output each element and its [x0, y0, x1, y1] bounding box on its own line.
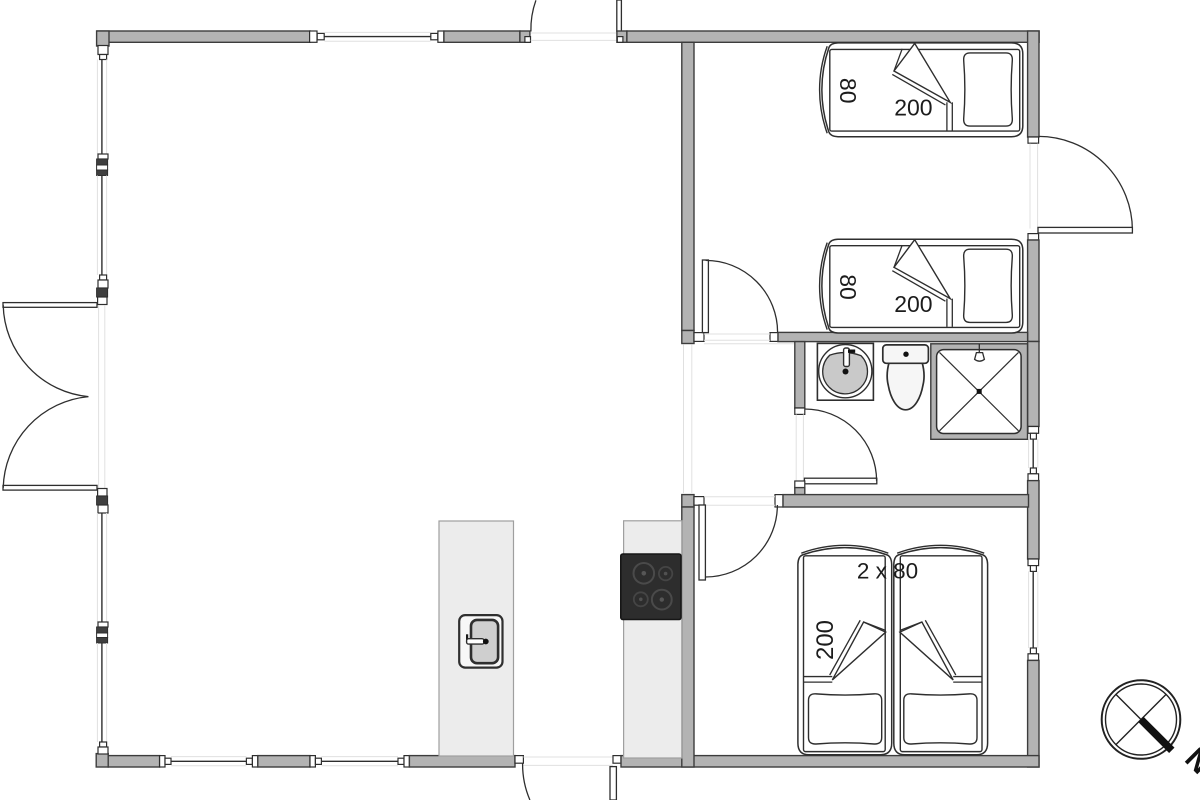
svg-text:200: 200	[894, 291, 932, 317]
svg-text:200: 200	[894, 95, 932, 121]
svg-text:80: 80	[835, 274, 861, 300]
svg-text:80: 80	[835, 78, 861, 104]
svg-text:2 x 80: 2 x 80	[857, 559, 918, 584]
svg-text:200: 200	[812, 620, 839, 660]
